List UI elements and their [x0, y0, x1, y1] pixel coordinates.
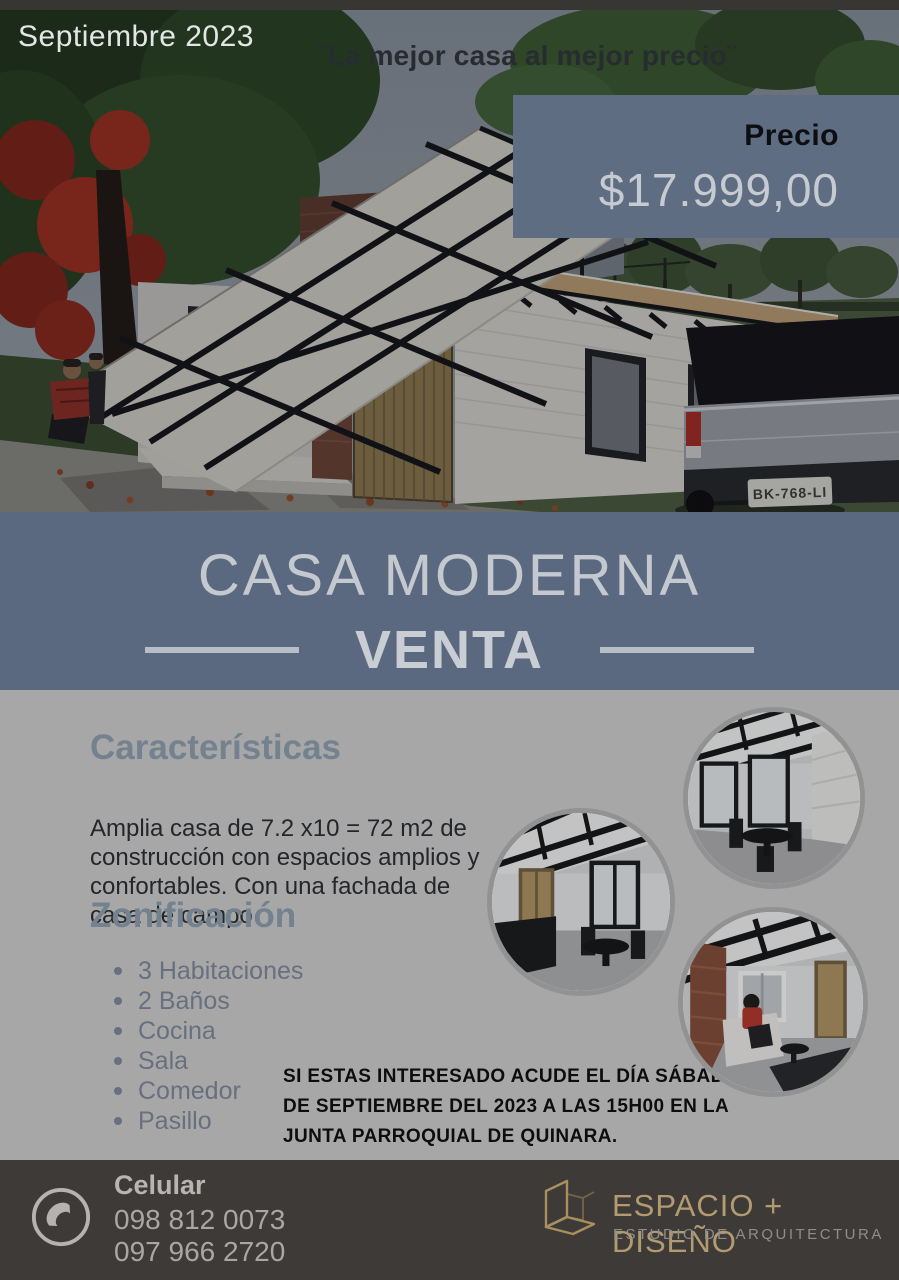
main-title: CASA MODERNA [0, 542, 899, 609]
footer: Celular 098 812 0073 097 966 2720 ESPACI… [0, 1160, 899, 1280]
invitation-line: JUNTA PARROQUIAL DE QUINARA. [283, 1122, 757, 1152]
list-item: Comedor [112, 1076, 303, 1106]
house-render-illustration: BK-768-LI [0, 10, 899, 512]
list-item: Sala [112, 1046, 303, 1076]
phone-label: Celular [114, 1170, 206, 1201]
tagline: ¨La mejor casa al mejor precio¨ [318, 40, 737, 72]
left-rule [145, 647, 299, 653]
list-item-label: 2 Baños [138, 987, 230, 1015]
price-amount: $17.999,00 [513, 163, 839, 217]
title-band: CASA MODERNA VENTA [0, 512, 899, 690]
top-strip [0, 0, 899, 10]
invitation-line: SI ESTAS INTERESADO ACUDE EL DÍA SÁBADO … [283, 1062, 757, 1092]
list-item: 3 Habitaciones [112, 956, 303, 986]
features-heading: Características [90, 728, 341, 768]
hero-photo: BK-768-LI Septiembre 2023 ¨La mejor casa… [0, 10, 899, 512]
subtitle-row: VENTA [0, 619, 899, 681]
list-item: Cocina [112, 1016, 303, 1046]
details-section: Características Amplia casa de 7.2 x10 =… [0, 690, 899, 1160]
phone-number: 098 812 0073 [114, 1204, 285, 1236]
flyer-page: BK-768-LI Septiembre 2023 ¨La mejor casa… [0, 0, 899, 1280]
cube-outline-icon [536, 1176, 602, 1246]
list-item-label: 3 Habitaciones [138, 957, 303, 985]
zoning-list: 3 Habitaciones 2 Baños Cocina Sala Comed… [112, 956, 303, 1136]
photo-dim-overlay [0, 10, 899, 512]
list-item-label: Comedor [138, 1077, 241, 1105]
list-item: Pasillo [112, 1106, 303, 1136]
list-item-label: Pasillo [138, 1107, 212, 1135]
zoning-heading: Zonificación [90, 896, 296, 936]
brand-name: ESPACIO + DISEÑO [612, 1188, 899, 1260]
price-box: Precio $17.999,00 [513, 95, 899, 238]
invitation-text: SI ESTAS INTERESADO ACUDE EL DÍA SÁBADO … [283, 1062, 757, 1152]
list-item-label: Sala [138, 1047, 188, 1075]
interior-photo-living [678, 907, 868, 1097]
price-label: Precio [513, 119, 839, 153]
date-label: Septiembre 2023 [18, 20, 254, 54]
list-item: 2 Baños [112, 986, 303, 1016]
interior-photo-dining [683, 707, 865, 889]
phone-icon [30, 1186, 92, 1248]
phone-number: 097 966 2720 [114, 1236, 285, 1268]
list-item-label: Cocina [138, 1017, 216, 1045]
invitation-line: DE SEPTIEMBRE DEL 2023 A LAS 15H00 EN LA [283, 1092, 757, 1122]
brand-subtitle: ESTUDIO DE ARQUITECTURA [613, 1226, 884, 1243]
subtitle: VENTA [355, 619, 544, 681]
right-rule [600, 647, 754, 653]
interior-photo-kitchen [487, 808, 675, 996]
